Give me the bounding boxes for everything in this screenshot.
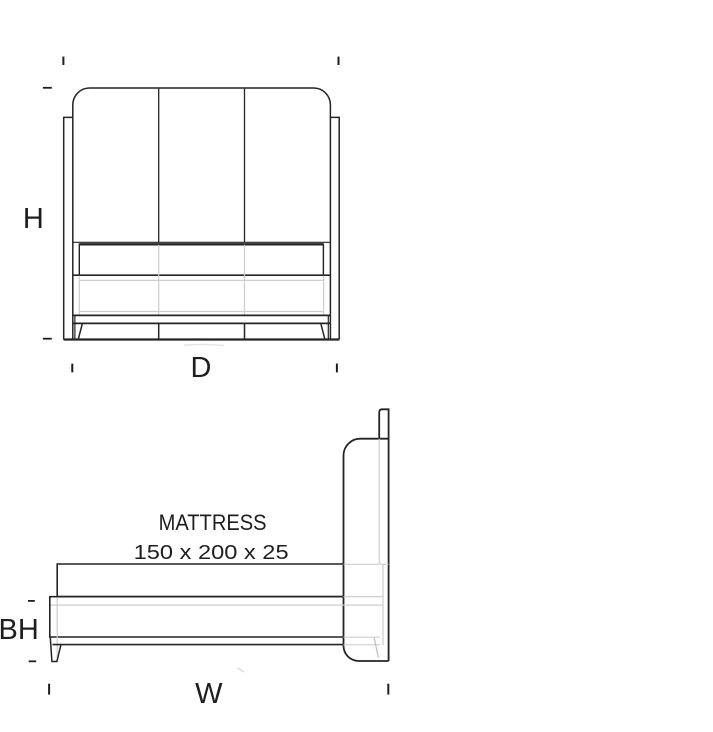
svg-text:150 x 200 x 25: 150 x 200 x 25: [134, 541, 289, 564]
svg-text:D: D: [191, 352, 212, 384]
svg-text:BH: BH: [0, 614, 39, 646]
svg-text:H: H: [23, 203, 44, 235]
svg-text:W: W: [195, 678, 223, 710]
svg-text:MATTRESS: MATTRESS: [159, 510, 267, 535]
